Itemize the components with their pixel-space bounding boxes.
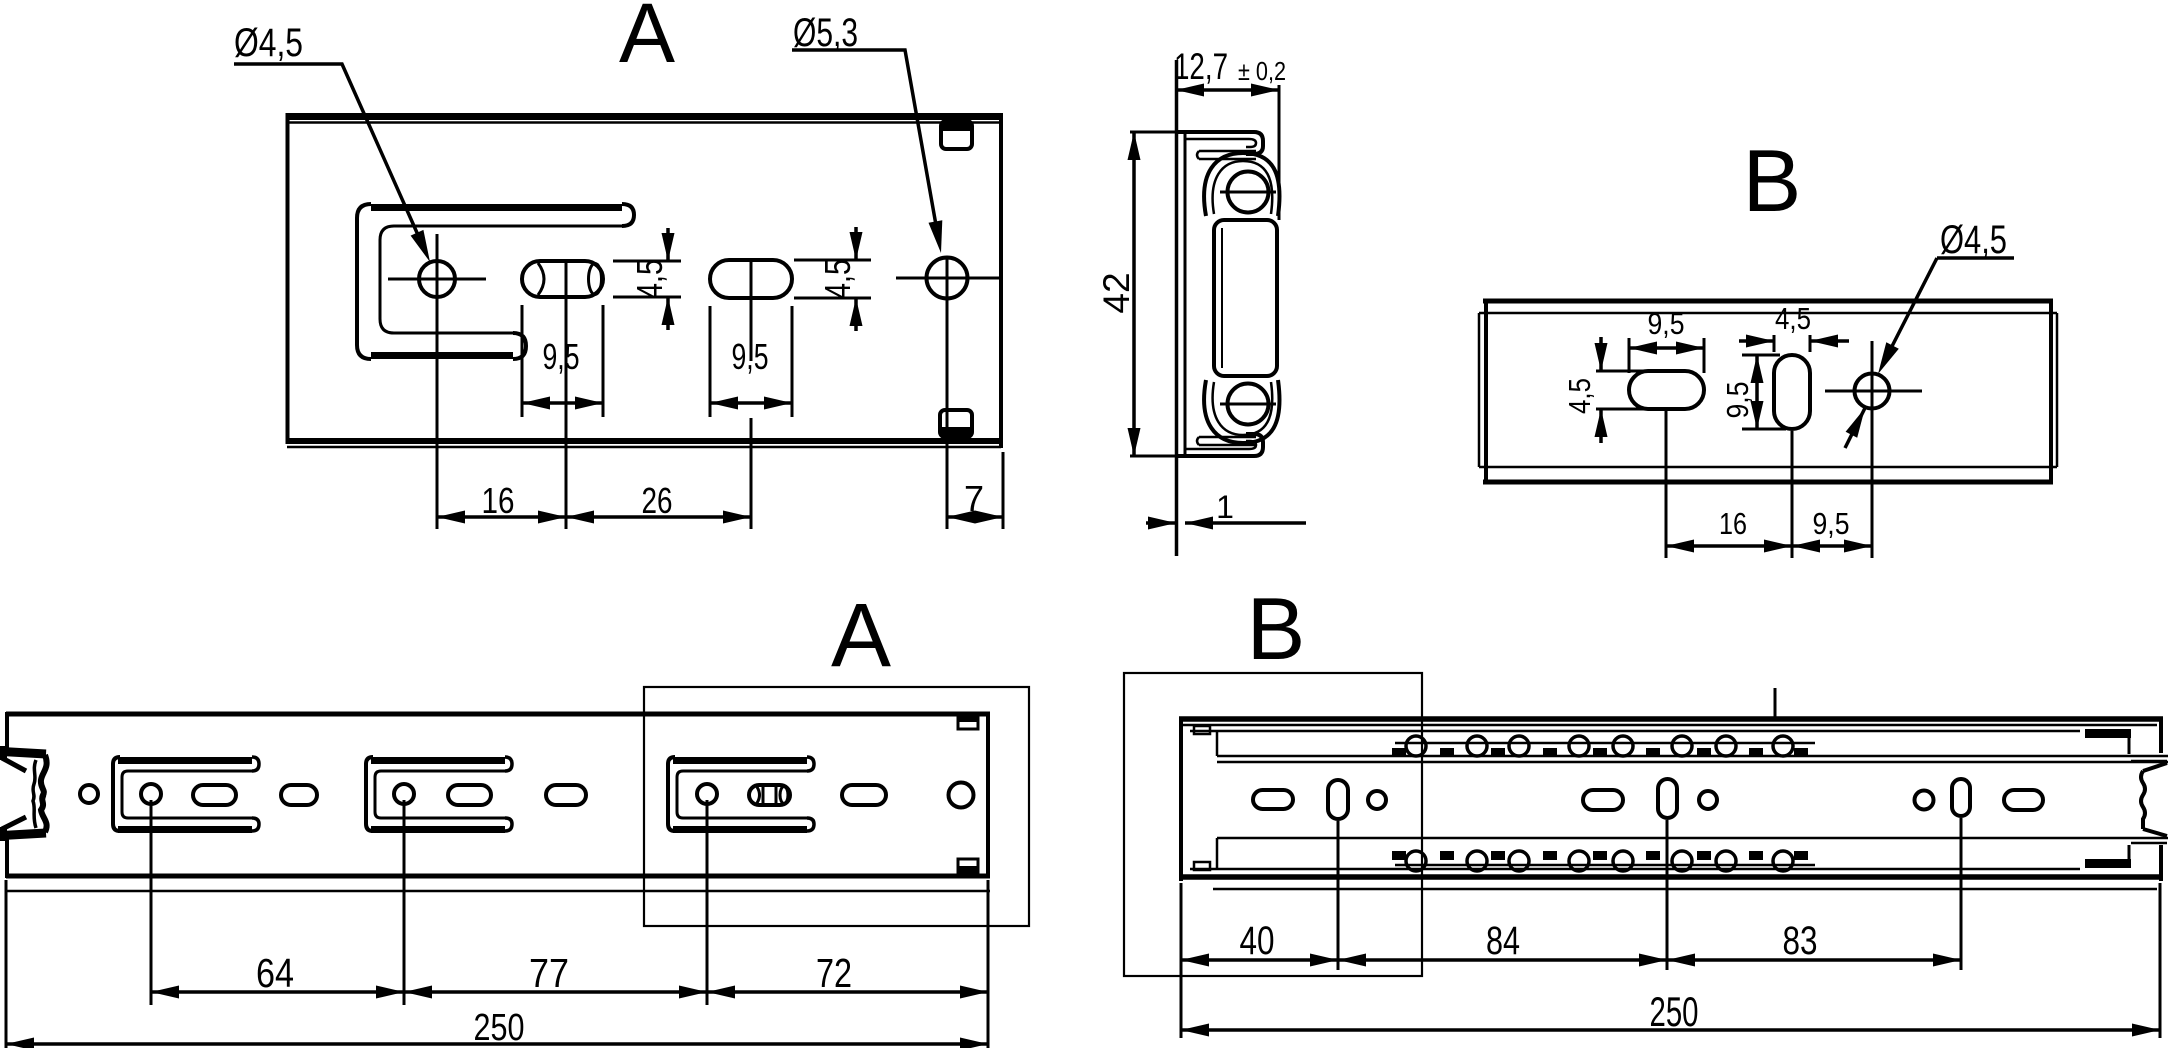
svg-text:B: B <box>1743 131 1802 230</box>
svg-text:4,5: 4,5 <box>1775 301 1811 336</box>
svg-text:84: 84 <box>1486 919 1520 963</box>
svg-text:4,5: 4,5 <box>1562 378 1597 414</box>
svg-text:A: A <box>619 0 675 80</box>
svg-text:250: 250 <box>474 1007 525 1048</box>
svg-text:Ø4,5: Ø4,5 <box>1940 218 2007 262</box>
svg-text:83: 83 <box>1783 919 1818 963</box>
svg-text:9,5: 9,5 <box>543 336 580 377</box>
svg-text:9,5: 9,5 <box>1813 506 1850 541</box>
svg-text:1: 1 <box>1216 489 1234 525</box>
svg-text:26: 26 <box>642 480 673 521</box>
svg-text:16: 16 <box>1719 506 1747 541</box>
svg-text:± 0,2: ± 0,2 <box>1238 56 1286 86</box>
svg-text:40: 40 <box>1240 919 1275 963</box>
svg-text:4,5: 4,5 <box>629 259 670 299</box>
svg-text:16: 16 <box>482 480 515 521</box>
svg-text:250: 250 <box>1650 988 1699 1035</box>
svg-text:A: A <box>831 586 891 686</box>
svg-text:9,5: 9,5 <box>1648 306 1685 341</box>
svg-text:B: B <box>1247 579 1306 678</box>
svg-text:7: 7 <box>964 478 984 519</box>
svg-text:77: 77 <box>529 950 569 996</box>
svg-text:9,5: 9,5 <box>1720 382 1755 419</box>
svg-text:Ø4,5: Ø4,5 <box>234 21 303 65</box>
svg-text:9,5: 9,5 <box>732 336 769 377</box>
svg-text:42: 42 <box>1096 272 1137 313</box>
svg-text:12,7: 12,7 <box>1174 46 1228 87</box>
svg-text:72: 72 <box>816 950 852 996</box>
svg-text:4,5: 4,5 <box>817 259 858 299</box>
svg-text:64: 64 <box>256 950 294 996</box>
